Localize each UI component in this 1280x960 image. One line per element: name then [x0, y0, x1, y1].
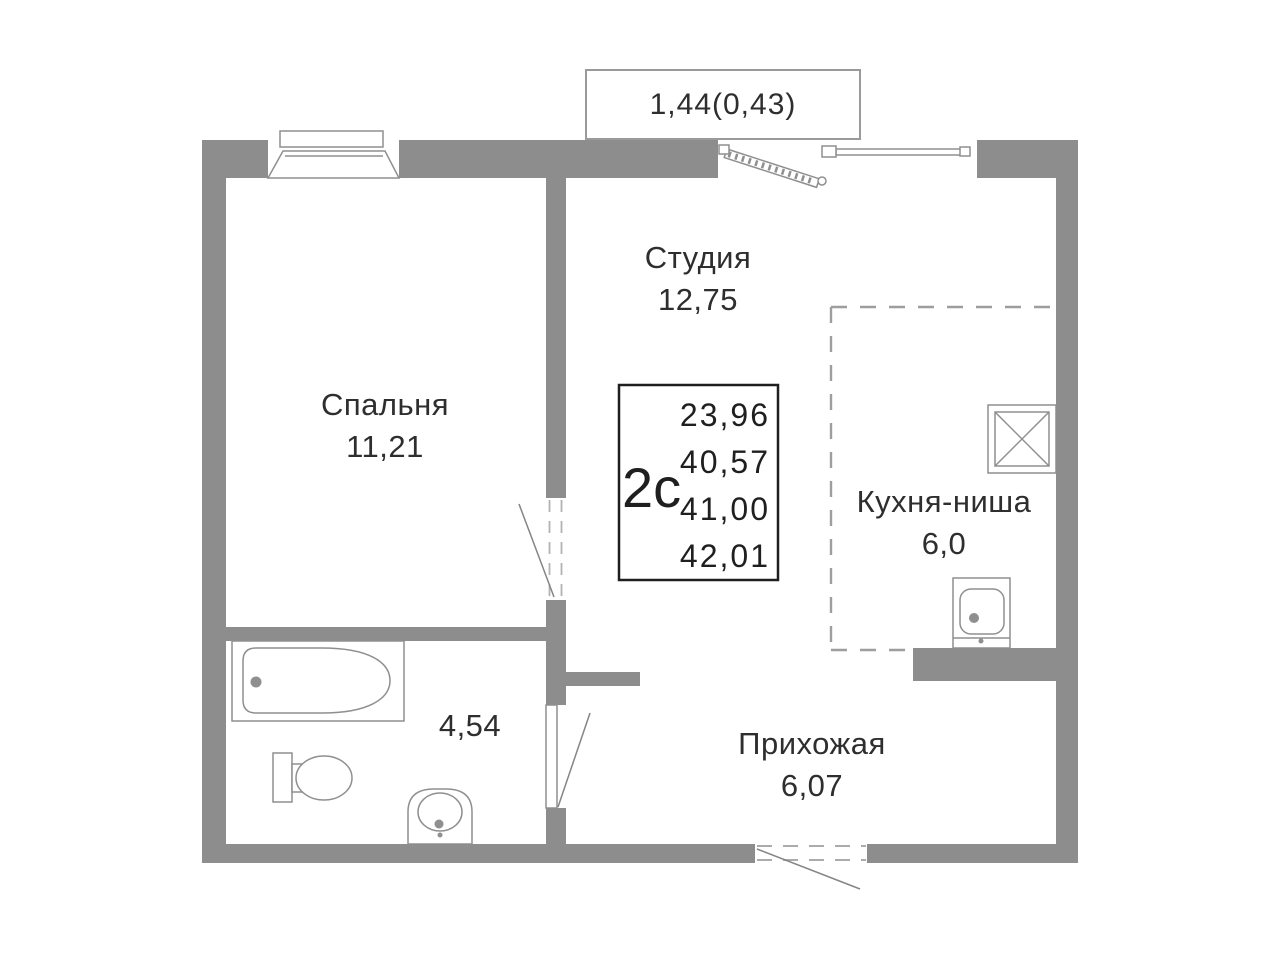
bedroom-window-icon: [268, 131, 399, 178]
info-area-4: 42,01: [680, 538, 770, 574]
studio-area-label: 12,75: [658, 282, 738, 317]
wall-bathroom-top: [226, 627, 546, 641]
wall-divider-bottom: [546, 808, 566, 844]
bedroom-door-icon: [519, 500, 562, 598]
studio-name-label: Студия: [645, 240, 752, 275]
wall-left: [202, 140, 226, 863]
wall-divider-top: [546, 178, 566, 498]
wall-divider-mid: [546, 600, 566, 705]
hallway-name-label: Прихожая: [738, 726, 886, 761]
floor-plan-canvas: 1,44(0,43): [0, 0, 1280, 960]
kitchen-name-label: Кухня-ниша: [857, 484, 1032, 519]
bathroom-sink-icon: [408, 789, 472, 844]
apartment-info-box: 2с 23,96 40,57 41,00 42,01: [619, 385, 778, 580]
info-area-2: 40,57: [680, 444, 770, 480]
floor-plan: 1,44(0,43): [0, 0, 1280, 960]
kitchen-area-label: 6,0: [922, 526, 967, 561]
bedroom-area-label: 11,21: [346, 429, 424, 464]
bathroom-door-icon: [546, 705, 590, 808]
wall-kitchen-bottom: [913, 648, 1056, 681]
balcony-callout: 1,44(0,43): [586, 70, 860, 139]
info-area-3: 41,00: [680, 491, 770, 527]
bathtub-icon: [232, 641, 404, 721]
info-area-1: 23,96: [680, 397, 770, 433]
bathroom-area-label: 4,54: [439, 708, 501, 743]
vent-shaft-icon: [988, 405, 1056, 473]
bedroom-name-label: Спальня: [321, 387, 449, 422]
wall-bottom: [202, 844, 1078, 863]
balcony-area-label: 1,44(0,43): [650, 88, 797, 121]
toilet-icon: [273, 753, 352, 802]
hallway-area-label: 6,07: [781, 768, 843, 803]
kitchen-sink-icon: [953, 578, 1010, 648]
apartment-type-label: 2с: [622, 456, 681, 519]
wall-hallway-stub: [566, 672, 640, 686]
wall-right: [1056, 140, 1078, 863]
kitchen-niche-boundary: [831, 307, 1056, 650]
